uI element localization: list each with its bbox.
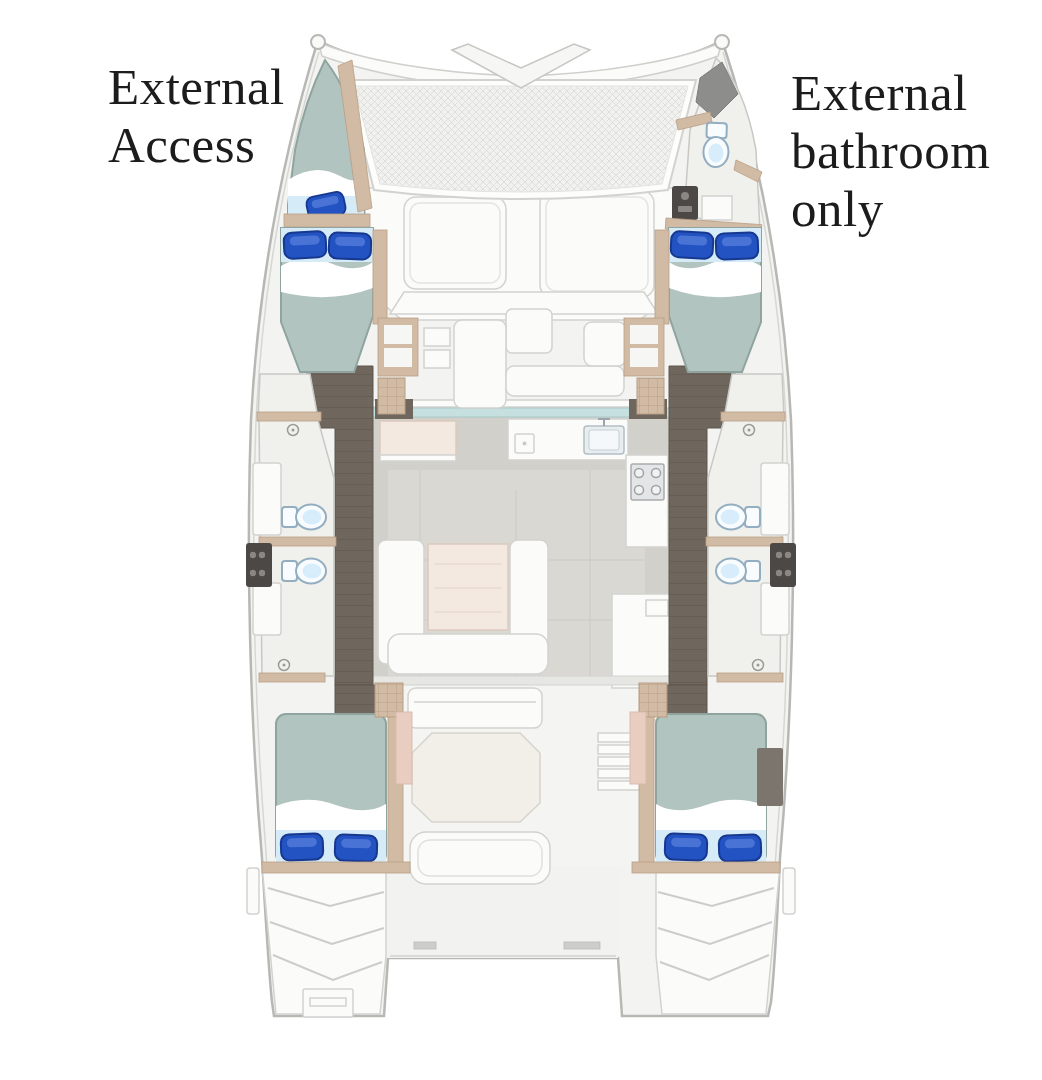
toilet-icon (716, 559, 760, 584)
pillow-icon (281, 833, 324, 860)
galley-aft-cabinet (612, 594, 672, 688)
starboard-foredeck-locker (624, 318, 664, 376)
annotation-line: Access (108, 116, 285, 174)
vanity (761, 583, 789, 635)
annotation-external-access: External Access (108, 58, 285, 174)
starboard-bow-fitting (715, 35, 729, 49)
port-aft-walkway (335, 685, 375, 716)
dining-table (428, 544, 508, 630)
bathroom-vanity-dark (672, 186, 698, 220)
pillow-icon (719, 834, 762, 861)
annotation-line: only (791, 180, 990, 238)
pillow-icon (329, 232, 372, 259)
toilet-icon (716, 505, 760, 530)
starboard-transom (656, 866, 780, 1014)
chart-table (380, 421, 456, 458)
annotation-line: bathroom (791, 122, 990, 180)
port-outboard-tab (247, 868, 259, 914)
sunpad-starboard (540, 191, 654, 297)
toilet-icon (282, 505, 326, 530)
shower-fixture (770, 543, 796, 587)
starboard-outboard-tab (783, 868, 795, 914)
vanity (253, 583, 281, 635)
cockpit-forward-seat (408, 688, 542, 728)
pillow-icon (665, 833, 708, 860)
aft-deck-fitting (414, 942, 436, 949)
sunpad-port (404, 197, 506, 289)
boarding-ladder (303, 989, 353, 1017)
vanity (253, 463, 281, 535)
port-aft-cabin (262, 714, 410, 873)
vanity (761, 463, 789, 535)
aft-deck-fitting (564, 942, 600, 949)
toilet-icon (703, 123, 730, 168)
foredeck-hatch (506, 309, 552, 353)
annotation-external-bathroom-only: External bathroom only (791, 64, 990, 238)
galley-counter (508, 419, 628, 460)
annotation-line: External (108, 58, 285, 116)
shower-fixture (246, 543, 272, 587)
pillow-icon (283, 231, 326, 259)
port-cockpit-pillar (396, 712, 412, 784)
pillow-icon (335, 834, 378, 861)
port-cabin-floor (258, 374, 318, 418)
aft-closet (757, 748, 783, 806)
port-foredeck-locker (378, 318, 418, 376)
saloon (350, 400, 672, 688)
cockpit-table (412, 733, 540, 822)
pillow-icon (670, 231, 713, 259)
port-companionway-steps (378, 378, 405, 414)
starboard-companionway-steps (637, 378, 664, 414)
catamaran-layout-figure: External Access External bathroom only (0, 0, 1042, 1080)
dining-settee (378, 540, 548, 674)
stove-icon (631, 464, 664, 500)
trampoline-mesh (354, 86, 688, 192)
starboard-cockpit-pillar (630, 712, 646, 784)
stern-platforms (247, 866, 795, 1017)
pillow-icon (716, 232, 759, 259)
toilet-icon (282, 559, 326, 584)
port-bow-fitting (311, 35, 325, 49)
annotation-line: External (791, 64, 990, 122)
starboard-aft-walkway (667, 685, 707, 716)
trampoline-assembly (311, 35, 729, 199)
starboard-cabin-floor (724, 374, 784, 418)
